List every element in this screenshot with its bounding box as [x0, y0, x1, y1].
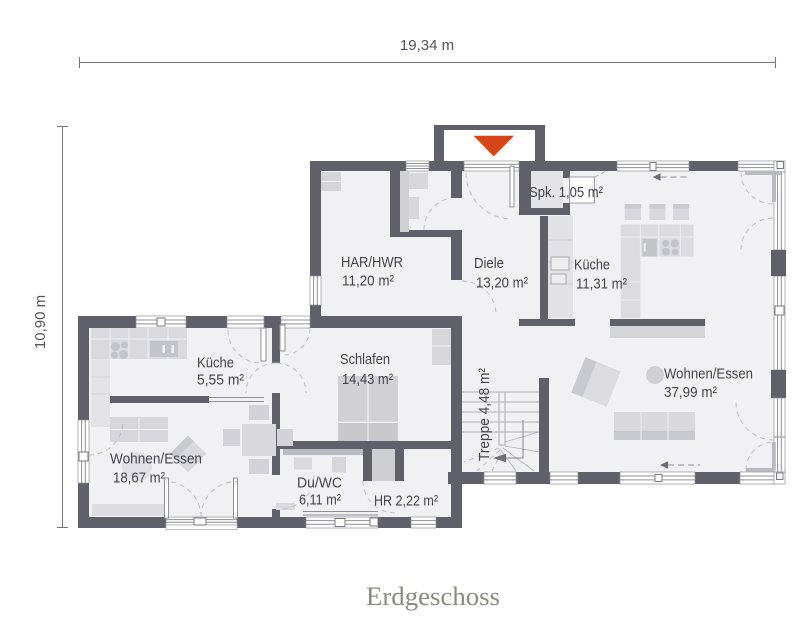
svg-text:Erdgeschoss: Erdgeschoss	[366, 582, 500, 611]
svg-text:14,43 m²: 14,43 m²	[342, 371, 393, 388]
svg-text:6,11 m²: 6,11 m²	[299, 492, 341, 509]
svg-text:Spk. 1,05 m²: Spk. 1,05 m²	[529, 184, 603, 201]
svg-text:Wohnen/Essen: Wohnen/Essen	[110, 451, 202, 468]
svg-text:5,55 m²: 5,55 m²	[197, 372, 244, 389]
svg-text:10,90 m: 10,90 m	[32, 295, 49, 349]
svg-text:Küche: Küche	[197, 355, 234, 372]
svg-text:11,20 m²: 11,20 m²	[342, 273, 394, 290]
svg-text:Küche: Küche	[574, 257, 610, 274]
svg-text:13,20 m²: 13,20 m²	[476, 275, 528, 292]
svg-text:19,34 m: 19,34 m	[400, 37, 454, 54]
svg-text:Treppe 4,48 m²: Treppe 4,48 m²	[476, 368, 493, 461]
svg-text:11,31 m²: 11,31 m²	[576, 276, 627, 293]
svg-text:Diele: Diele	[474, 255, 504, 272]
svg-text:18,67 m²: 18,67 m²	[113, 470, 165, 487]
svg-text:Schlafen: Schlafen	[340, 351, 390, 368]
svg-text:37,99 m²: 37,99 m²	[664, 384, 717, 401]
svg-text:HAR/HWR: HAR/HWR	[341, 254, 403, 271]
svg-text:HR 2,22 m²: HR 2,22 m²	[374, 493, 438, 510]
svg-text:Du/WC: Du/WC	[297, 475, 342, 492]
svg-text:Wohnen/Essen: Wohnen/Essen	[664, 366, 753, 383]
